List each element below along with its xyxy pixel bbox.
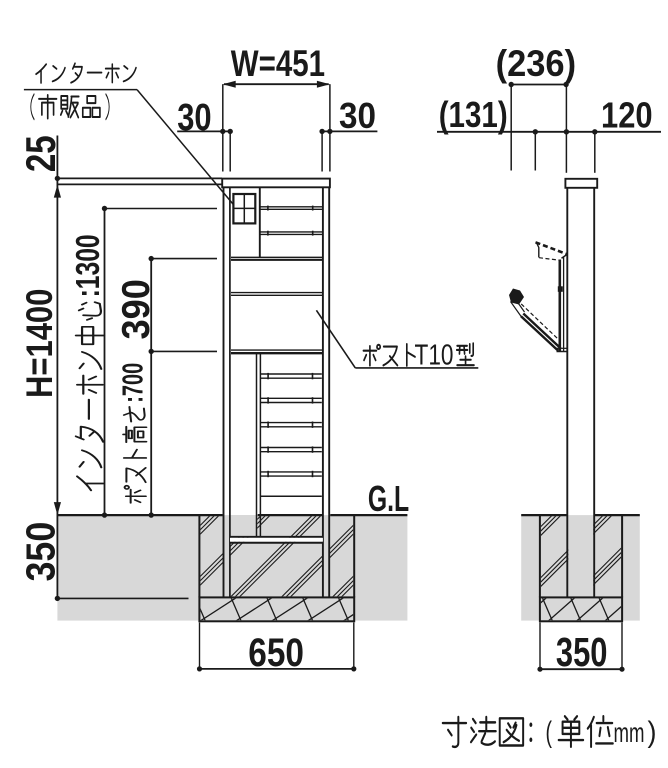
svg-text:(131): (131) bbox=[439, 94, 508, 135]
svg-text:25: 25 bbox=[17, 135, 64, 172]
svg-text:30: 30 bbox=[339, 95, 376, 136]
svg-text:(236): (236) bbox=[496, 43, 576, 84]
svg-text:650: 650 bbox=[248, 631, 304, 675]
svg-text:mm: mm bbox=[614, 717, 645, 748]
svg-text:：(: ：( bbox=[526, 716, 552, 749]
svg-text::700: :700 bbox=[118, 363, 150, 403]
svg-text:350: 350 bbox=[17, 522, 63, 582]
svg-text:H=1400: H=1400 bbox=[18, 289, 60, 398]
svg-text:30: 30 bbox=[177, 97, 211, 139]
svg-text:390: 390 bbox=[115, 279, 158, 339]
svg-text:): ) bbox=[648, 716, 657, 749]
svg-text:120: 120 bbox=[601, 94, 653, 135]
svg-text::1300: :1300 bbox=[69, 234, 106, 297]
svg-text:350: 350 bbox=[556, 629, 608, 675]
svg-text:W=451: W=451 bbox=[231, 43, 325, 84]
svg-text:G.L: G.L bbox=[368, 478, 409, 519]
svg-text:T10: T10 bbox=[415, 340, 454, 372]
